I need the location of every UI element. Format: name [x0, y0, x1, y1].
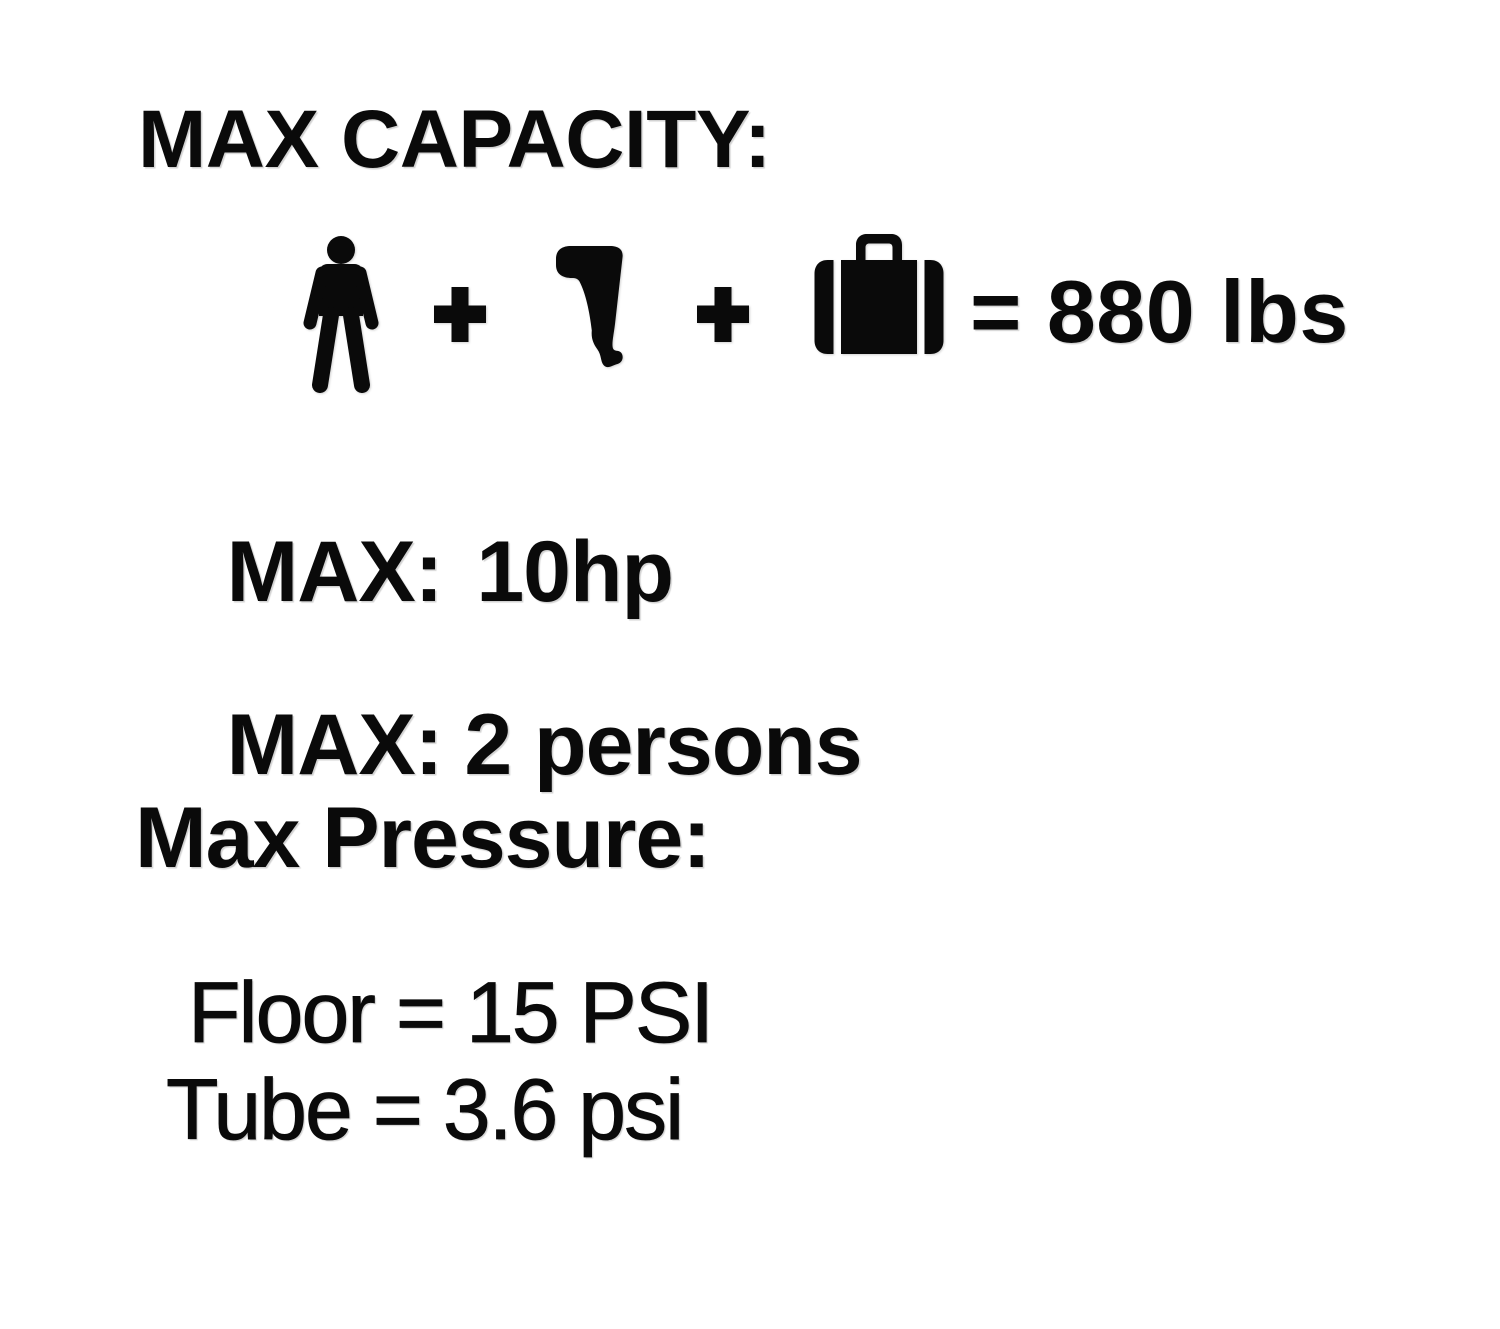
- max-capacity-heading: MAX CAPACITY:: [138, 99, 771, 181]
- tube-pressure-line: Tube = 3.6 psi: [166, 1067, 682, 1153]
- plus-icon: [434, 287, 486, 342]
- luggage-icon: [814, 234, 944, 354]
- outboard-motor-icon: [556, 246, 624, 381]
- max-pressure-heading: Max Pressure:: [135, 795, 710, 881]
- max-persons-value: 2 persons: [464, 702, 861, 788]
- capacity-spec-sheet: MAX CAPACITY: = 880 lbs MAX:: [0, 0, 1500, 1329]
- equals-total-weight: = 880 lbs: [970, 268, 1349, 356]
- max-hp-label: MAX:: [227, 524, 443, 620]
- person-icon: [303, 236, 379, 396]
- max-hp-value: 10hp: [476, 529, 673, 615]
- max-persons-label: MAX:: [227, 697, 443, 793]
- floor-pressure-line: Floor = 15 PSI: [188, 970, 712, 1056]
- plus-icon: [697, 287, 749, 342]
